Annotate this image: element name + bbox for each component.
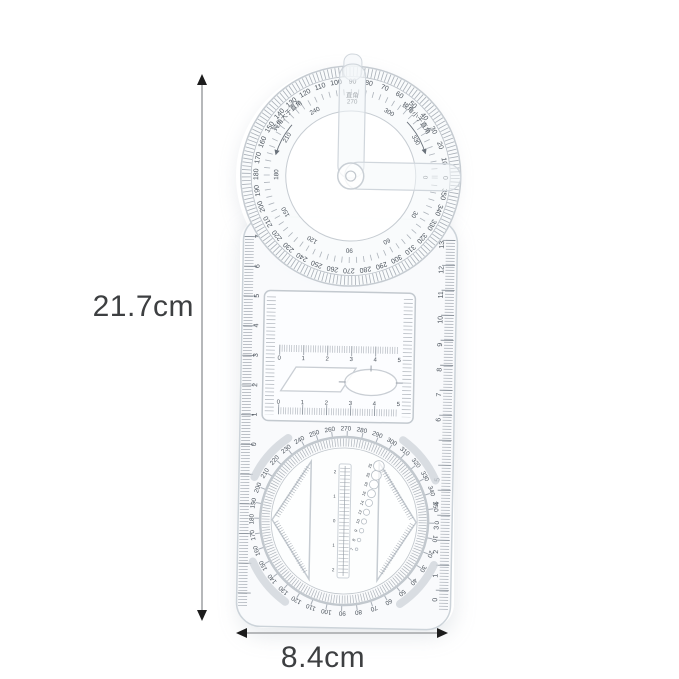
pivot-ring <box>337 163 363 189</box>
scale-label: 270 <box>343 266 355 273</box>
ruler-group: 01234567 678910111213 012345 01020304050… <box>232 52 463 630</box>
arrow-left-icon <box>236 628 247 638</box>
scale-label: 3 <box>253 353 260 357</box>
scale-label: 0 <box>432 598 439 602</box>
scale-label: 11 <box>438 291 445 299</box>
scale-label: 3 <box>433 526 440 530</box>
hole-template-circle <box>357 538 361 542</box>
scale-label: 0 <box>251 442 258 446</box>
scale-label: 8 <box>437 368 444 372</box>
scale-label: 5 <box>254 294 261 298</box>
scale-label: 7 <box>436 393 443 397</box>
top-protractor: 0102030405060708090100110120130140150160… <box>239 52 463 288</box>
hole-template-circle <box>355 548 358 551</box>
scale-label: 180 <box>249 513 256 524</box>
arrow-right-icon <box>437 628 448 638</box>
scale-label: 9 <box>437 343 444 347</box>
product-photo: 01234567 678910111213 012345 01020304050… <box>0 0 679 679</box>
arrow-up-icon <box>197 74 207 85</box>
scale-label: 6 <box>254 264 261 268</box>
hole-template-circle <box>361 519 366 524</box>
scale-label: 270 <box>341 425 352 432</box>
scale-label: 12 <box>438 266 445 274</box>
height-dimension-label: 21.7cm <box>82 290 194 324</box>
scale-label: 6 <box>436 418 443 422</box>
template-window: 012345 012345 <box>262 290 415 423</box>
scale-label: 2 <box>252 383 259 387</box>
hole-template-circle <box>363 509 369 515</box>
hole-template-circle <box>373 460 384 471</box>
arrow-down-icon <box>197 610 207 621</box>
hole-template-circle <box>369 480 378 489</box>
scale-label: 90 <box>345 246 353 253</box>
scale-label: 4 <box>253 323 260 327</box>
scale-label: 90 <box>338 609 346 616</box>
bottom-dial: 0102030405060708090100110120130140150160… <box>247 424 442 619</box>
ellipse-template <box>345 369 397 396</box>
hole-template-circle <box>371 470 381 480</box>
width-dimension-label: 8.4cm <box>263 641 383 675</box>
scale-label: 10 <box>437 316 444 324</box>
geometric-ruler: 01234567 678910111213 012345 01020304050… <box>0 0 679 679</box>
scale-label: 180 <box>273 169 280 180</box>
scale-label: 13 <box>439 241 446 249</box>
scale-label: 1 <box>433 574 440 578</box>
hole-template-circle <box>359 528 363 532</box>
height-dimension-line <box>201 82 203 613</box>
width-dimension-line <box>243 632 441 634</box>
arm-vertical-strip <box>338 64 366 178</box>
hole-template-circle <box>365 499 372 506</box>
window-frame <box>262 290 415 423</box>
hole-template-circle <box>367 490 375 498</box>
scale-label: 180 <box>253 168 260 180</box>
scale-label: 1 <box>252 412 259 416</box>
